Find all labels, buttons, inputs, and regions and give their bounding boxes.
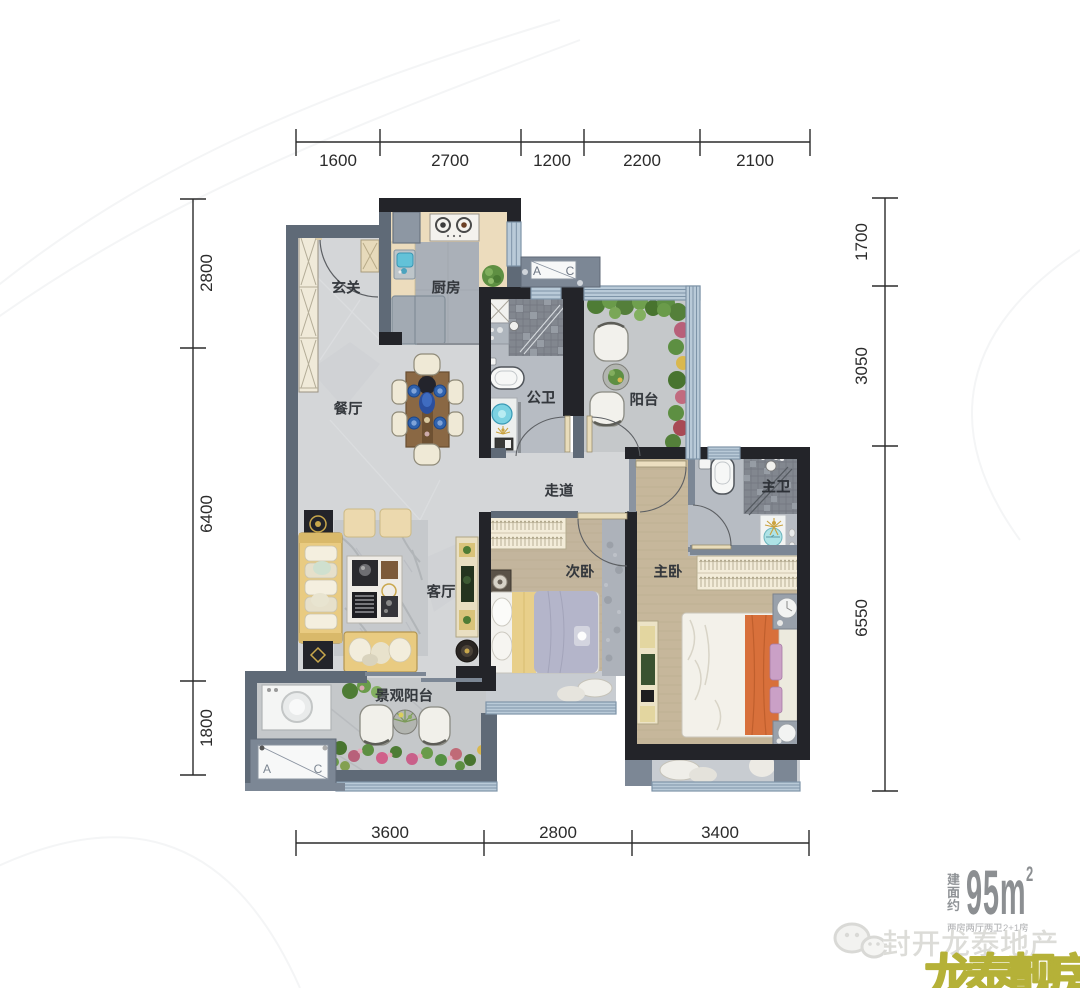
svg-text:1800: 1800 bbox=[197, 709, 216, 747]
svg-text:C: C bbox=[566, 264, 575, 278]
svg-text:6400: 6400 bbox=[197, 495, 216, 533]
svg-text:6550: 6550 bbox=[852, 599, 871, 637]
svg-text:3600: 3600 bbox=[371, 823, 409, 842]
svg-text:3400: 3400 bbox=[701, 823, 739, 842]
svg-text:A: A bbox=[263, 762, 271, 776]
svg-text:1200: 1200 bbox=[533, 151, 571, 170]
svg-text:2100: 2100 bbox=[736, 151, 774, 170]
svg-text:C: C bbox=[314, 762, 323, 776]
svg-text:2700: 2700 bbox=[431, 151, 469, 170]
svg-text:2200: 2200 bbox=[623, 151, 661, 170]
svg-text:3050: 3050 bbox=[852, 347, 871, 385]
svg-text:1600: 1600 bbox=[319, 151, 357, 170]
svg-text:2800: 2800 bbox=[539, 823, 577, 842]
svg-text:2800: 2800 bbox=[197, 254, 216, 292]
svg-text:A: A bbox=[533, 264, 541, 278]
svg-text:1700: 1700 bbox=[852, 223, 871, 261]
